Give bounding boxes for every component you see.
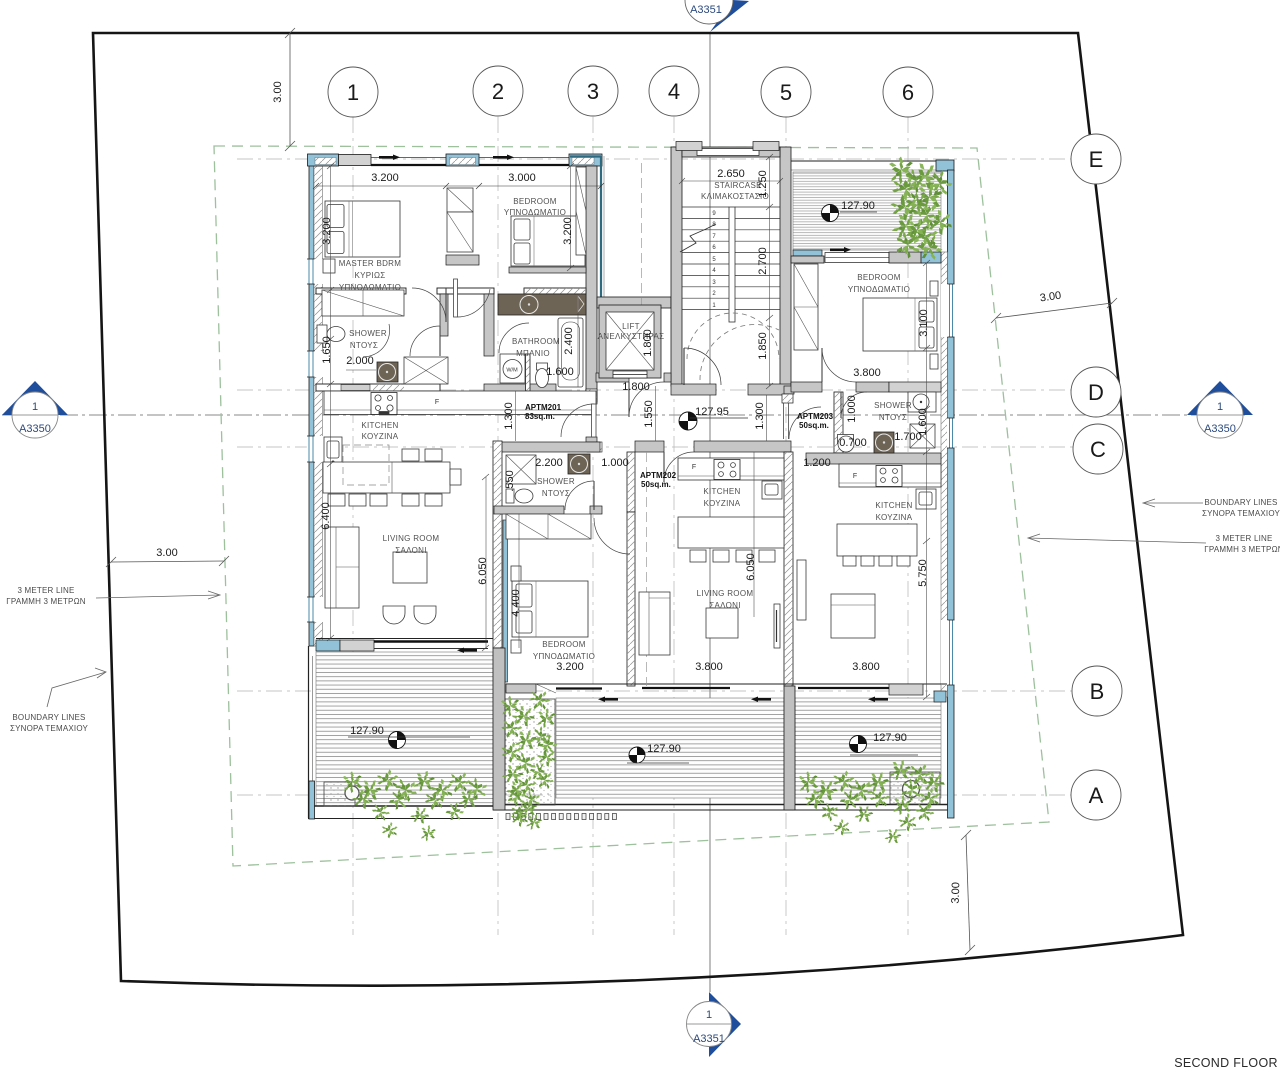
svg-text:3.00: 3.00 (950, 882, 963, 904)
svg-text:APTM201: APTM201 (525, 403, 562, 412)
svg-text:3.800: 3.800 (695, 661, 723, 673)
svg-text:ΓΡΑΜΜΗ 3 ΜΕΤΡΩΝ: ΓΡΑΜΜΗ 3 ΜΕΤΡΩΝ (6, 597, 85, 606)
svg-text:6.400: 6.400 (320, 502, 332, 530)
svg-text:2.200: 2.200 (535, 457, 563, 469)
svg-text:ΥΠΝΟΔΩΜΑΤΙΟ: ΥΠΝΟΔΩΜΑΤΙΟ (504, 208, 566, 217)
svg-text:4.400: 4.400 (510, 589, 522, 617)
svg-text:4: 4 (668, 79, 680, 104)
svg-text:6: 6 (902, 80, 914, 105)
svg-text:3.000: 3.000 (508, 172, 536, 184)
svg-text:ΣΑΛΟΝΙ: ΣΑΛΟΝΙ (395, 546, 426, 555)
svg-text:3.800: 3.800 (852, 661, 880, 673)
svg-text:1: 1 (706, 1009, 712, 1021)
svg-text:0.700: 0.700 (839, 437, 867, 449)
svg-text:1.600: 1.600 (917, 408, 929, 436)
svg-text:BEDROOM: BEDROOM (857, 273, 900, 282)
svg-text:5.750: 5.750 (917, 559, 929, 587)
svg-text:SHOWER: SHOWER (874, 401, 912, 410)
svg-text:1.850: 1.850 (757, 332, 769, 360)
svg-text:2: 2 (492, 79, 504, 104)
svg-text:3.200: 3.200 (556, 661, 584, 673)
svg-text:127.90: 127.90 (841, 200, 875, 212)
svg-text:APTM203: APTM203 (797, 412, 834, 421)
svg-text:1: 1 (1217, 401, 1223, 413)
svg-text:ΚΟΥΖΙΝΑ: ΚΟΥΖΙΝΑ (876, 513, 913, 522)
svg-text:1.600: 1.600 (546, 366, 574, 378)
svg-text:KITCHEN: KITCHEN (361, 421, 398, 430)
svg-text:ΚΟΥΖΙΝΑ: ΚΟΥΖΙΝΑ (704, 499, 741, 508)
svg-text:E: E (1089, 147, 1104, 172)
svg-text:127.90: 127.90 (647, 743, 681, 755)
svg-text:MASTER BDRM: MASTER BDRM (339, 259, 401, 268)
svg-text:3.200: 3.200 (562, 217, 574, 245)
svg-text:SECOND FLOOR: SECOND FLOOR (1174, 1056, 1278, 1070)
svg-text:50sq.m.: 50sq.m. (641, 480, 671, 489)
svg-text:ΥΠΝΟΔΩΜΑΤΙΟ: ΥΠΝΟΔΩΜΑΤΙΟ (533, 652, 595, 661)
svg-text:6.050: 6.050 (477, 557, 489, 585)
svg-text:BOUNDARY LINES: BOUNDARY LINES (1204, 498, 1277, 507)
svg-text:D: D (1088, 380, 1104, 405)
svg-text:APTM202: APTM202 (640, 471, 677, 480)
svg-text:ΣΥΝΟΡΑ ΤΕΜΑΧΙΟΥ: ΣΥΝΟΡΑ ΤΕΜΑΧΙΟΥ (10, 724, 89, 733)
svg-text:ΝΤΟΥΣ: ΝΤΟΥΣ (350, 341, 378, 350)
svg-text:KITCHEN: KITCHEN (703, 487, 740, 496)
svg-text:2.700: 2.700 (757, 247, 769, 275)
svg-text:STAIRCASE: STAIRCASE (714, 181, 761, 190)
svg-text:BEDROOM: BEDROOM (542, 640, 585, 649)
svg-text:ΣΑΛΟΝΙ: ΣΑΛΟΝΙ (709, 601, 740, 610)
svg-text:ΝΤΟΥΣ: ΝΤΟΥΣ (542, 489, 570, 498)
svg-text:2.650: 2.650 (717, 168, 745, 180)
svg-text:ΜΠΑΝΙΟ: ΜΠΑΝΙΟ (516, 349, 550, 358)
svg-text:1.250: 1.250 (757, 170, 769, 198)
svg-text:3.200: 3.200 (321, 217, 333, 245)
svg-text:ΚΟΥΖΙΝΑ: ΚΟΥΖΙΝΑ (362, 432, 399, 441)
svg-text:BEDROOM: BEDROOM (513, 197, 556, 206)
svg-text:ΥΠΝΟΔΩΜΑΤΙΟ: ΥΠΝΟΔΩΜΑΤΙΟ (339, 283, 401, 292)
svg-text:1.300: 1.300 (503, 402, 515, 430)
svg-text:127.90: 127.90 (873, 732, 907, 744)
svg-text:1.550: 1.550 (643, 400, 655, 428)
svg-text:5: 5 (780, 80, 792, 105)
svg-text:SHOWER: SHOWER (349, 329, 387, 338)
svg-text:3.800: 3.800 (853, 367, 881, 379)
svg-text:1: 1 (32, 401, 38, 413)
svg-text:127.95: 127.95 (695, 406, 729, 418)
svg-text:3.200: 3.200 (371, 172, 399, 184)
svg-text:A3351: A3351 (690, 4, 722, 16)
svg-text:ΥΠΝΟΔΩΜΑΤΙΟ: ΥΠΝΟΔΩΜΑΤΙΟ (848, 285, 910, 294)
svg-text:6.050: 6.050 (745, 553, 757, 581)
svg-text:A: A (1089, 783, 1104, 808)
svg-text:ΑΝΕΛΚΥΣΤΗΡΑΣ: ΑΝΕΛΚΥΣΤΗΡΑΣ (598, 332, 665, 341)
svg-text:ΣΥΝΟΡΑ ΤΕΜΑΧΙΟΥ: ΣΥΝΟΡΑ ΤΕΜΑΧΙΟΥ (1202, 509, 1280, 518)
svg-text:50sq.m.: 50sq.m. (799, 421, 829, 430)
svg-text:1: 1 (347, 80, 359, 105)
svg-text:KITCHEN: KITCHEN (875, 501, 912, 510)
svg-text:3.100: 3.100 (918, 309, 930, 337)
svg-text:ΝΤΟΥΣ: ΝΤΟΥΣ (879, 413, 907, 422)
svg-text:3: 3 (587, 79, 599, 104)
svg-text:A3350: A3350 (1204, 423, 1236, 435)
svg-text:ΓΡΑΜΜΗ 3 ΜΕΤΡΩΝ: ΓΡΑΜΜΗ 3 ΜΕΤΡΩΝ (1204, 545, 1280, 554)
svg-text:1.800: 1.800 (642, 329, 654, 357)
svg-text:2.000: 2.000 (346, 355, 374, 367)
svg-text:.550: .550 (504, 470, 516, 491)
svg-text:1.200: 1.200 (803, 457, 831, 469)
svg-text:A3351: A3351 (693, 1033, 725, 1045)
svg-text:F: F (435, 399, 439, 406)
svg-text:A3350: A3350 (19, 423, 51, 435)
svg-text:1.300: 1.300 (754, 402, 766, 430)
svg-text:3 METER LINE: 3 METER LINE (17, 586, 74, 595)
svg-text:2.400: 2.400 (563, 327, 575, 355)
svg-text:ΚΥΡΙΩΣ: ΚΥΡΙΩΣ (355, 271, 386, 280)
svg-text:3 METER LINE: 3 METER LINE (1215, 534, 1272, 543)
svg-text:1.650: 1.650 (321, 336, 333, 364)
svg-text:C: C (1090, 437, 1106, 462)
svg-text:1.000: 1.000 (846, 395, 858, 423)
svg-text:F: F (692, 464, 696, 471)
svg-text:F: F (853, 473, 857, 480)
svg-text:1.800: 1.800 (622, 381, 650, 393)
svg-text:83sq.m.: 83sq.m. (525, 412, 555, 421)
svg-text:LIVING ROOM: LIVING ROOM (697, 589, 754, 598)
svg-text:W/M: W/M (506, 368, 518, 374)
svg-text:BOUNDARY LINES: BOUNDARY LINES (12, 713, 85, 722)
svg-text:BATHROOM: BATHROOM (512, 337, 560, 346)
svg-text:3.00: 3.00 (156, 547, 177, 559)
svg-text:SHOWER: SHOWER (537, 477, 575, 486)
svg-text:B: B (1090, 679, 1105, 704)
svg-text:LIFT: LIFT (622, 322, 640, 331)
svg-text:LIVING ROOM: LIVING ROOM (383, 534, 440, 543)
svg-text:3.00: 3.00 (272, 81, 284, 102)
svg-text:127.90: 127.90 (350, 725, 384, 737)
svg-text:1.000: 1.000 (601, 457, 629, 469)
